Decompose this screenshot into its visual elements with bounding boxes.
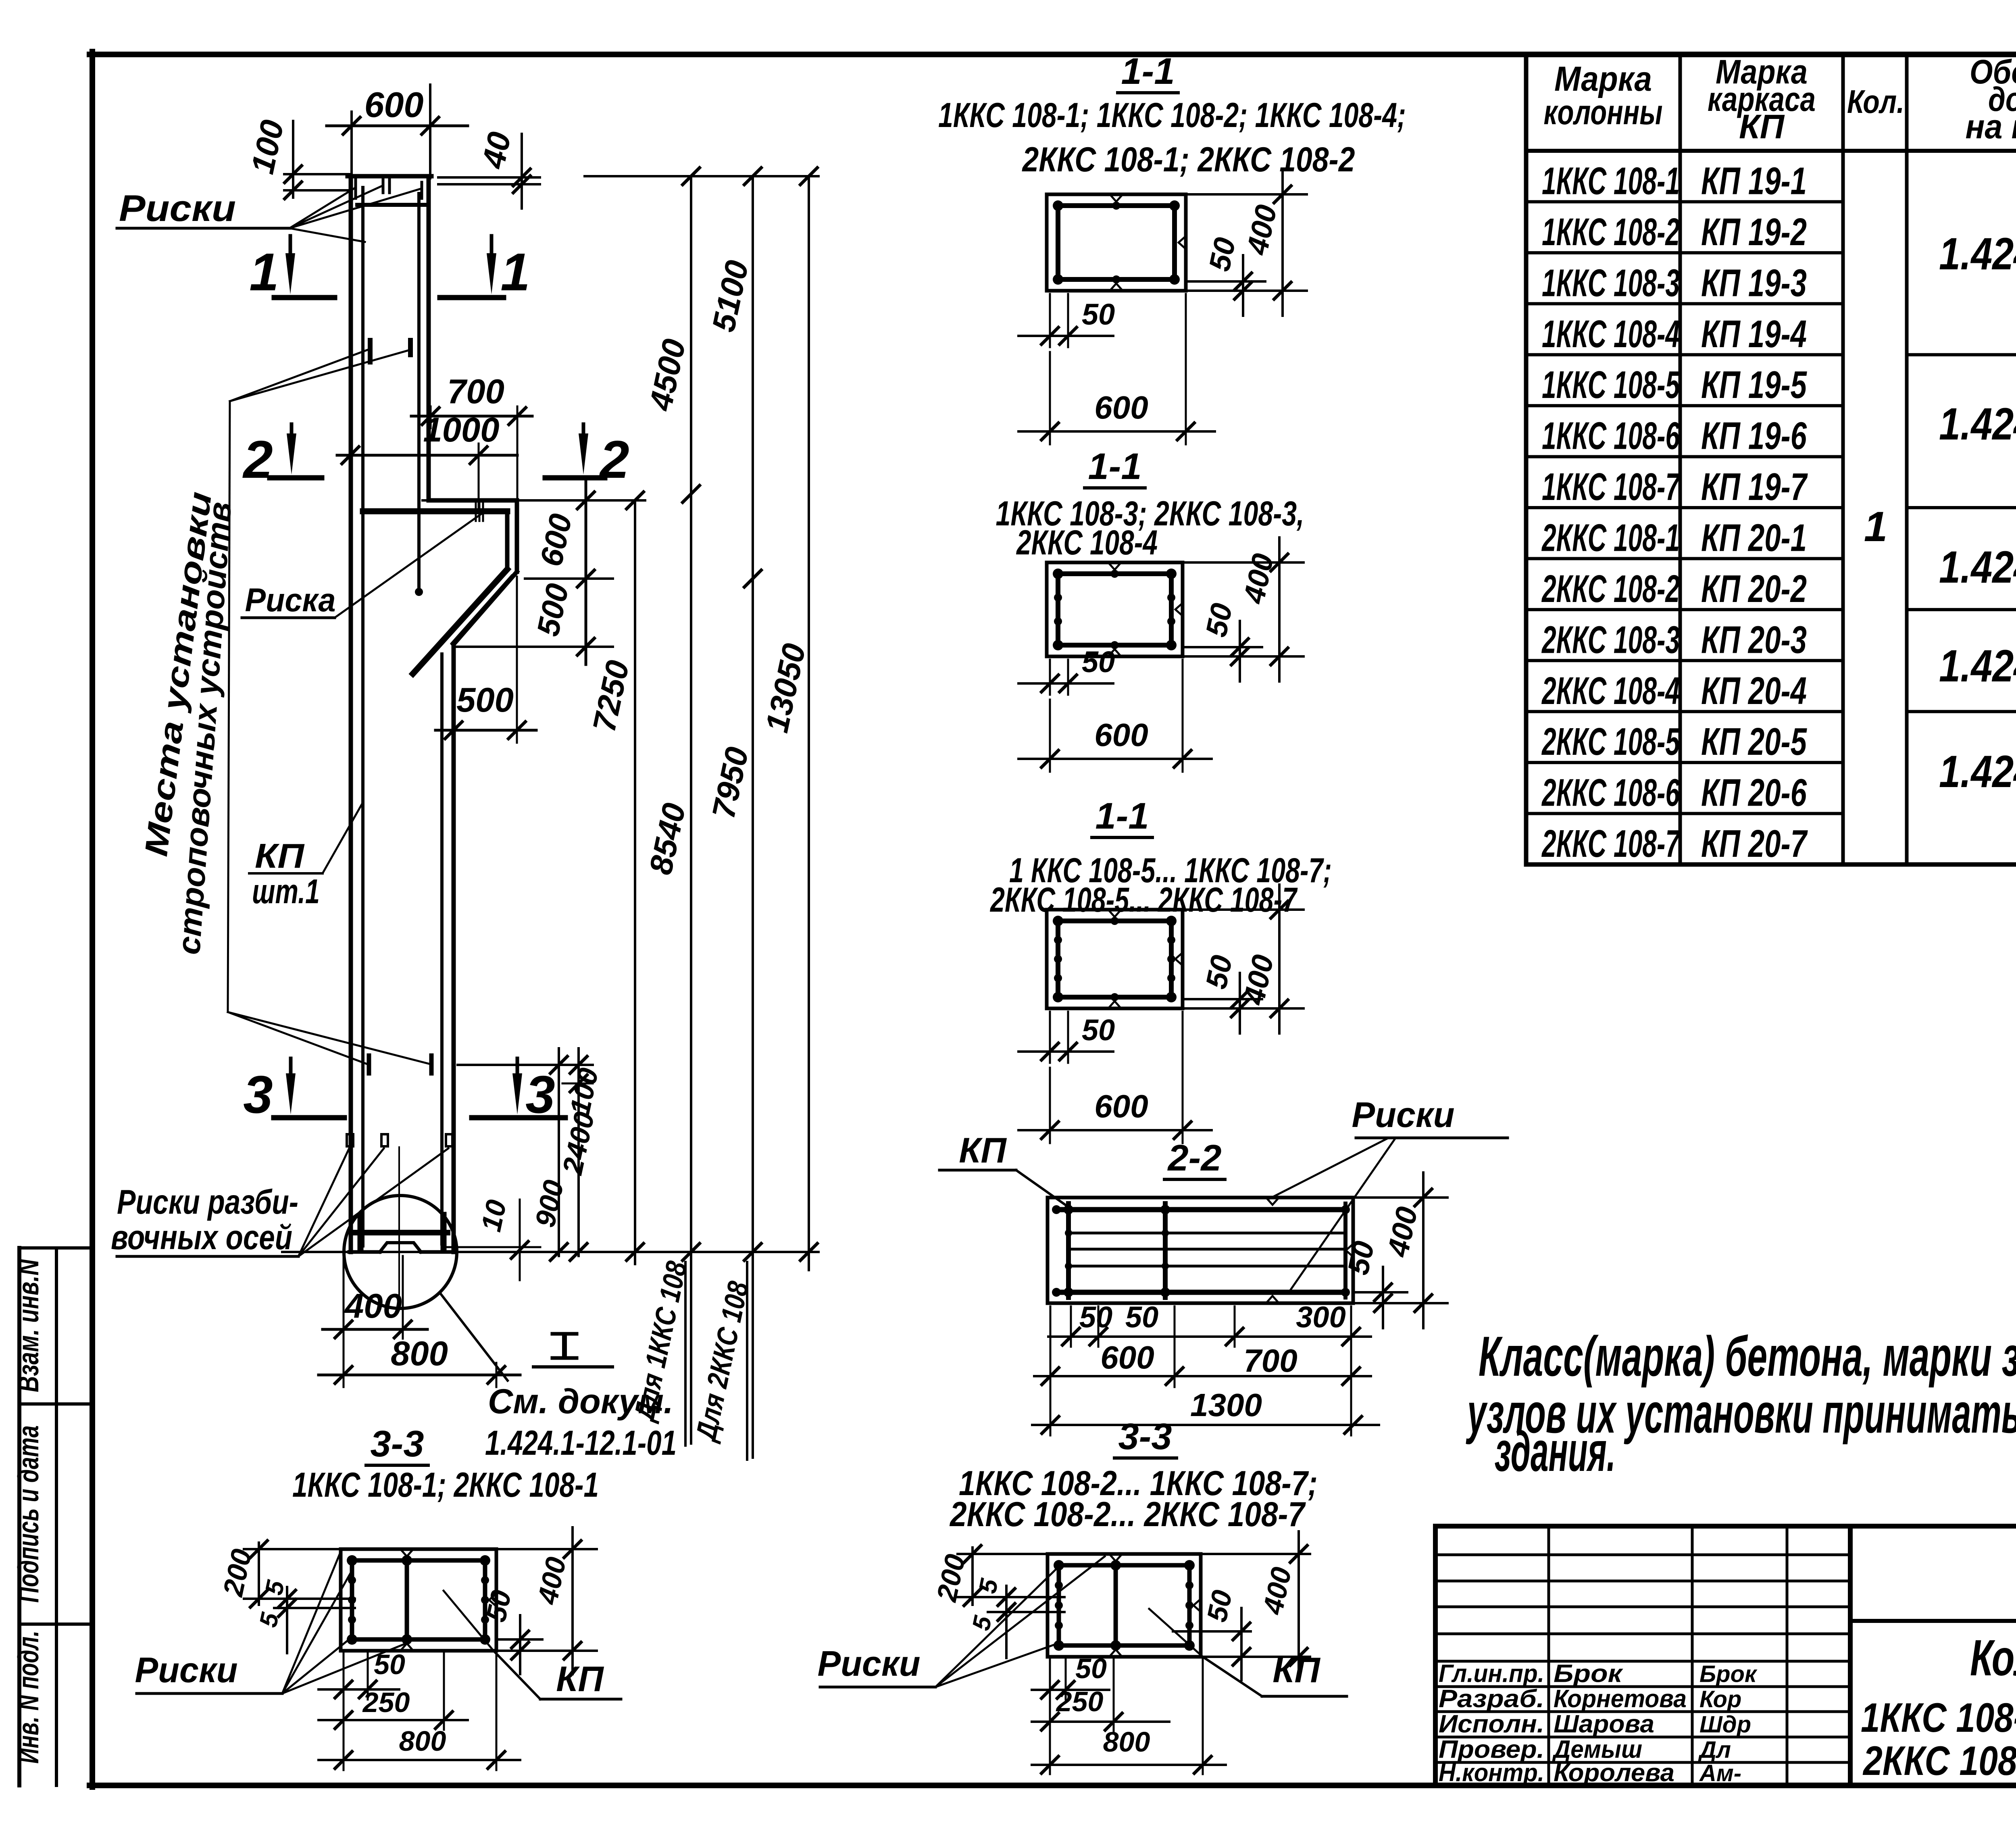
- svg-text:400: 400: [1237, 952, 1280, 1008]
- svg-text:КП 19-5: КП 19-5: [1701, 363, 1807, 406]
- svg-text:КП: КП: [255, 837, 305, 875]
- svg-text:400: 400: [1240, 202, 1283, 258]
- svg-text:700: 700: [1243, 1343, 1297, 1379]
- svg-text:Шдр: Шдр: [1699, 1712, 1751, 1738]
- svg-text:50: 50: [1202, 235, 1242, 274]
- svg-text:2ККС 108-3: 2ККС 108-3: [1541, 618, 1680, 661]
- svg-text:КП 19-4: КП 19-4: [1701, 312, 1807, 356]
- svg-text:3: 3: [525, 1065, 555, 1124]
- svg-text:50: 50: [374, 1649, 405, 1680]
- svg-text:КП: КП: [1272, 1650, 1320, 1690]
- svg-text:1-1: 1-1: [1088, 446, 1142, 487]
- svg-text:900: 900: [529, 1177, 570, 1230]
- svg-text:КП: КП: [959, 1130, 1007, 1170]
- svg-text:2ККС 108-1...2ККС 108-7: 2ККС 108-1...2ККС 108-7: [1862, 1738, 2016, 1784]
- svg-text:Королева: Королева: [1554, 1759, 1674, 1787]
- svg-text:2ККС 108-1; 2ККС 108-2: 2ККС 108-1; 2ККС 108-2: [1022, 140, 1355, 179]
- svg-text:Для 2ККС 108: Для 2ККС 108: [689, 1279, 755, 1445]
- svg-text:1000: 1000: [423, 411, 499, 449]
- svg-text:1: 1: [500, 242, 530, 302]
- svg-text:1ККС 108-1...1ККС 108-7;: 1ККС 108-1...1ККС 108-7;: [1861, 1695, 2016, 1741]
- svg-text:Разраб.: Разраб.: [1439, 1685, 1544, 1713]
- svg-text:Марка: Марка: [1554, 60, 1652, 98]
- svg-text:КП 20-1: КП 20-1: [1701, 516, 1807, 559]
- svg-text:1ККС 108-5: 1ККС 108-5: [1542, 363, 1680, 406]
- svg-text:1ККС 108-1: 1ККС 108-1: [1542, 159, 1680, 202]
- svg-text:800: 800: [399, 1725, 446, 1757]
- svg-text:2ККС 108-2... 2ККС 108-7: 2ККС 108-2... 2ККС 108-7: [949, 1495, 1306, 1534]
- svg-text:400: 400: [1257, 1564, 1297, 1618]
- svg-text:КП 20-2: КП 20-2: [1701, 567, 1807, 610]
- svg-text:5: 5: [967, 1613, 998, 1633]
- svg-text:8540: 8540: [642, 800, 692, 878]
- svg-text:колонны: колонны: [1544, 93, 1663, 132]
- svg-text:1ККС 108-4: 1ККС 108-4: [1542, 312, 1680, 356]
- svg-text:1.424.1-12.2-55: 1.424.1-12.2-55: [1939, 641, 2016, 691]
- svg-text:Гл.ин.пр.: Гл.ин.пр.: [1439, 1660, 1544, 1688]
- svg-text:КП 20-4: КП 20-4: [1701, 669, 1807, 712]
- svg-text:2: 2: [242, 430, 273, 489]
- svg-text:вочных осей: вочных осей: [111, 1218, 292, 1257]
- svg-text:Инв. N подл.: Инв. N подл.: [12, 1631, 45, 1764]
- svg-text:2ККС 108-2: 2ККС 108-2: [1541, 567, 1680, 610]
- svg-text:шт.1: шт.1: [252, 873, 320, 911]
- svg-text:50: 50: [1082, 298, 1115, 331]
- svg-text:50: 50: [1341, 1238, 1381, 1278]
- svg-text:1ККС 108-1; 2ККС 108-1: 1ККС 108-1; 2ККС 108-1: [292, 1466, 599, 1504]
- svg-text:10: 10: [475, 1197, 512, 1234]
- svg-text:2: 2: [598, 430, 629, 489]
- svg-text:КП 19-1: КП 19-1: [1701, 159, 1807, 202]
- svg-text:50: 50: [1082, 1013, 1115, 1047]
- svg-text:Риска: Риска: [245, 582, 336, 619]
- svg-text:Дл: Дл: [1697, 1737, 1731, 1763]
- svg-text:1.424.1-12.2-56: 1.424.1-12.2-56: [1939, 746, 2016, 797]
- svg-text:1: 1: [1864, 503, 1887, 550]
- svg-text:1ККС 108-3: 1ККС 108-3: [1542, 261, 1680, 304]
- svg-text:1.424.1-12.2-54: 1.424.1-12.2-54: [1939, 542, 2016, 592]
- svg-text:3-3: 3-3: [371, 1423, 424, 1464]
- svg-text:1-1: 1-1: [1121, 51, 1175, 92]
- svg-text:Риски разби-: Риски разби-: [117, 1183, 298, 1221]
- svg-text:50: 50: [1125, 1300, 1158, 1334]
- svg-text:на каркас КП: на каркас КП: [1966, 108, 2016, 146]
- svg-text:400: 400: [344, 1287, 402, 1325]
- svg-text:КП 19-7: КП 19-7: [1701, 465, 1808, 508]
- svg-text:КП: КП: [556, 1659, 604, 1699]
- svg-text:Корнетова: Корнетова: [1554, 1685, 1687, 1713]
- svg-text:Риски: Риски: [119, 188, 236, 229]
- svg-text:КП 20-3: КП 20-3: [1701, 618, 1807, 661]
- svg-text:1.424.1-12.2-52: 1.424.1-12.2-52: [1939, 229, 2016, 279]
- svg-text:КП 20-6: КП 20-6: [1701, 771, 1807, 814]
- svg-text:1.424.1-12.1-01: 1.424.1-12.1-01: [485, 1424, 677, 1462]
- svg-text:600: 600: [364, 85, 424, 125]
- svg-text:250: 250: [362, 1687, 410, 1718]
- svg-text:Исполн.: Исполн.: [1439, 1710, 1544, 1738]
- svg-text:400: 400: [1237, 551, 1280, 607]
- svg-text:4500: 4500: [642, 336, 692, 414]
- svg-text:2ККС 108-7: 2ККС 108-7: [1541, 822, 1681, 865]
- svg-text:7250: 7250: [586, 657, 636, 735]
- svg-text:5100: 5100: [705, 257, 755, 335]
- svg-text:50: 50: [1082, 645, 1115, 679]
- svg-text:1ККС 108-6: 1ККС 108-6: [1542, 414, 1680, 458]
- svg-text:3-3: 3-3: [1118, 1416, 1172, 1457]
- svg-text:2ККС 108-4: 2ККС 108-4: [1016, 523, 1158, 562]
- svg-text:Кор: Кор: [1699, 1686, 1741, 1712]
- svg-text:600: 600: [1094, 717, 1148, 753]
- svg-text:КП 19-2: КП 19-2: [1701, 210, 1807, 254]
- svg-text:400: 400: [531, 1554, 572, 1608]
- svg-text:3: 3: [243, 1065, 273, 1124]
- svg-text:1.424.1-12.2-53: 1.424.1-12.2-53: [1939, 399, 2016, 449]
- svg-text:600: 600: [1100, 1339, 1154, 1375]
- svg-text:250: 250: [1056, 1686, 1104, 1717]
- svg-text:40: 40: [475, 129, 518, 173]
- svg-text:Н.контр.: Н.контр.: [1439, 1759, 1544, 1787]
- svg-text:2ККС 108-6: 2ККС 108-6: [1541, 771, 1680, 814]
- svg-text:300: 300: [1296, 1300, 1345, 1334]
- svg-text:Брок: Брок: [1554, 1660, 1623, 1688]
- svg-text:400: 400: [1381, 1204, 1424, 1260]
- svg-text:Брок: Брок: [1699, 1661, 1758, 1687]
- svg-text:Класс(марка) бетона, марки зак: Класс(марка) бетона, марки закладных изд…: [1479, 1325, 2016, 1388]
- svg-text:5: 5: [254, 1610, 285, 1630]
- svg-text:600: 600: [533, 511, 579, 570]
- svg-text:КП: КП: [1739, 108, 1785, 146]
- svg-text:здания.: здания.: [1495, 1420, 1616, 1483]
- svg-text:Подпись и дата: Подпись и дата: [12, 1425, 45, 1603]
- svg-text:КП 19-6: КП 19-6: [1701, 414, 1807, 458]
- svg-text:600: 600: [1094, 1088, 1148, 1124]
- svg-text:2ККС 108-5: 2ККС 108-5: [1541, 720, 1680, 763]
- svg-text:1300: 1300: [1190, 1387, 1262, 1423]
- svg-text:50: 50: [1199, 952, 1239, 992]
- svg-text:50: 50: [1201, 1587, 1238, 1625]
- svg-text:1ККС 108-2: 1ККС 108-2: [1542, 210, 1680, 254]
- svg-text:50: 50: [1199, 600, 1239, 640]
- svg-text:1-1: 1-1: [1095, 796, 1149, 837]
- svg-text:Взам. инв.N: Взам. инв.N: [12, 1258, 45, 1392]
- svg-text:Шарова: Шарова: [1554, 1710, 1654, 1738]
- svg-text:500: 500: [456, 681, 514, 719]
- svg-text:50: 50: [480, 1587, 517, 1625]
- svg-text:Риски: Риски: [1352, 1095, 1455, 1135]
- svg-text:500: 500: [530, 581, 575, 639]
- svg-text:1ККС 108-1; 1ККС 108-2; 1ККС 1: 1ККС 108-1; 1ККС 108-2; 1ККС 108-4;: [938, 96, 1406, 135]
- svg-text:Ам-: Ам-: [1699, 1760, 1741, 1787]
- svg-text:2ККС 108-5... 2ККС 108-7: 2ККС 108-5... 2ККС 108-7: [989, 881, 1298, 919]
- svg-text:2-2: 2-2: [1167, 1137, 1222, 1179]
- svg-text:КП 20-7: КП 20-7: [1701, 822, 1808, 865]
- svg-text:Риски: Риски: [135, 1650, 238, 1690]
- svg-text:Для 1ККС 108: Для 1ККС 108: [628, 1258, 693, 1425]
- svg-text:Риски: Риски: [818, 1643, 921, 1683]
- svg-text:КП 19-3: КП 19-3: [1701, 261, 1807, 304]
- svg-text:100: 100: [244, 117, 291, 177]
- svg-text:800: 800: [1103, 1726, 1150, 1758]
- svg-text:700: 700: [447, 373, 504, 411]
- svg-text:Кол.: Кол.: [1847, 83, 1904, 120]
- svg-text:2ККС 108-4: 2ККС 108-4: [1541, 669, 1680, 712]
- svg-text:Колонна: Колонна: [1970, 1629, 2016, 1686]
- svg-text:1: 1: [249, 242, 279, 302]
- svg-text:7950: 7950: [705, 744, 755, 822]
- svg-text:50: 50: [1079, 1300, 1112, 1334]
- svg-text:КП 20-5: КП 20-5: [1701, 720, 1807, 763]
- svg-text:600: 600: [1094, 389, 1148, 425]
- svg-text:200: 200: [217, 1546, 258, 1600]
- svg-text:50: 50: [1075, 1653, 1107, 1684]
- svg-text:1ККС 108-7: 1ККС 108-7: [1542, 465, 1681, 508]
- svg-text:2ККС 108-1: 2ККС 108-1: [1541, 516, 1680, 559]
- svg-text:13050: 13050: [758, 640, 812, 735]
- svg-text:800: 800: [391, 1335, 448, 1373]
